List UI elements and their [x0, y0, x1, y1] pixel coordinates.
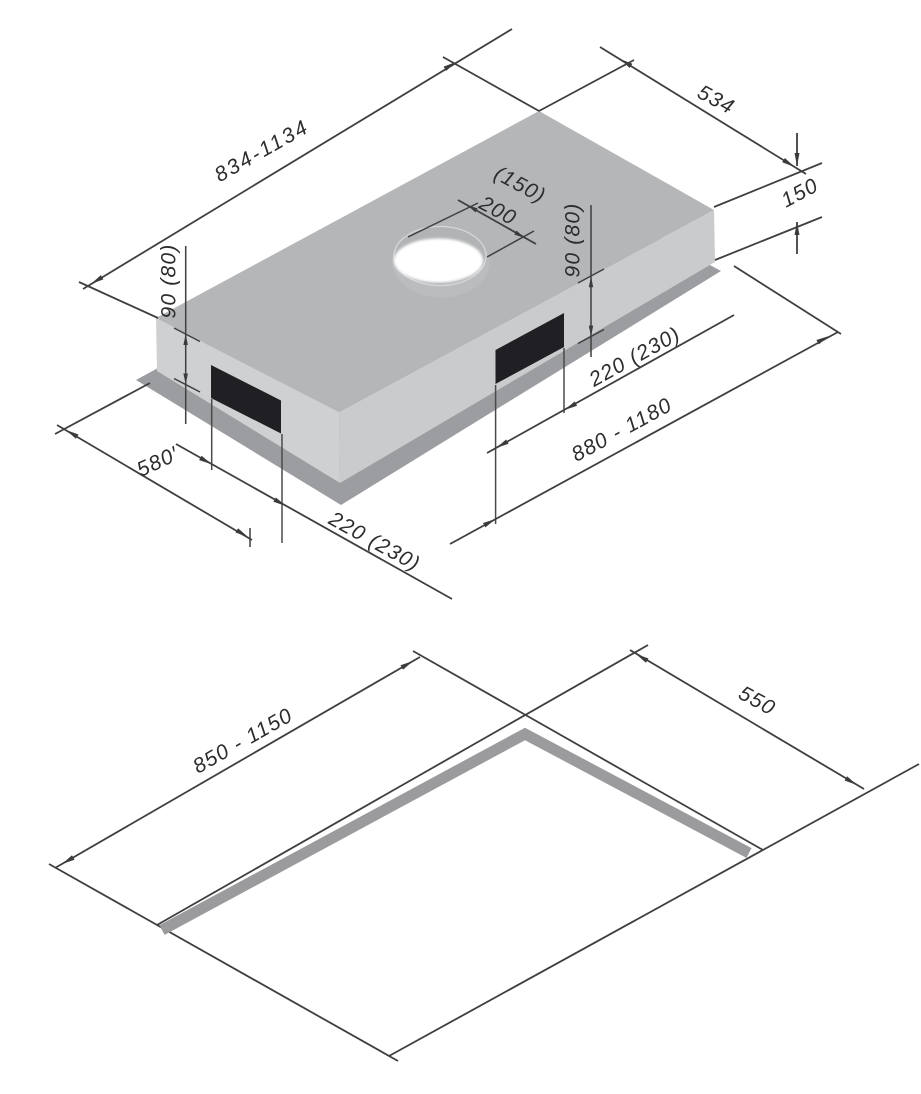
svg-text:90 (80): 90 (80): [562, 203, 585, 278]
svg-text:550: 550: [735, 682, 780, 721]
svg-text:90 (80): 90 (80): [158, 244, 181, 319]
svg-text:534: 534: [694, 81, 739, 119]
svg-text:834-1134: 834-1134: [211, 115, 314, 187]
svg-text:580′: 580′: [133, 442, 182, 481]
svg-text:150: 150: [778, 174, 823, 212]
svg-text:220 (230): 220 (230): [324, 507, 424, 576]
svg-text:850 - 1150: 850 - 1150: [189, 704, 297, 779]
